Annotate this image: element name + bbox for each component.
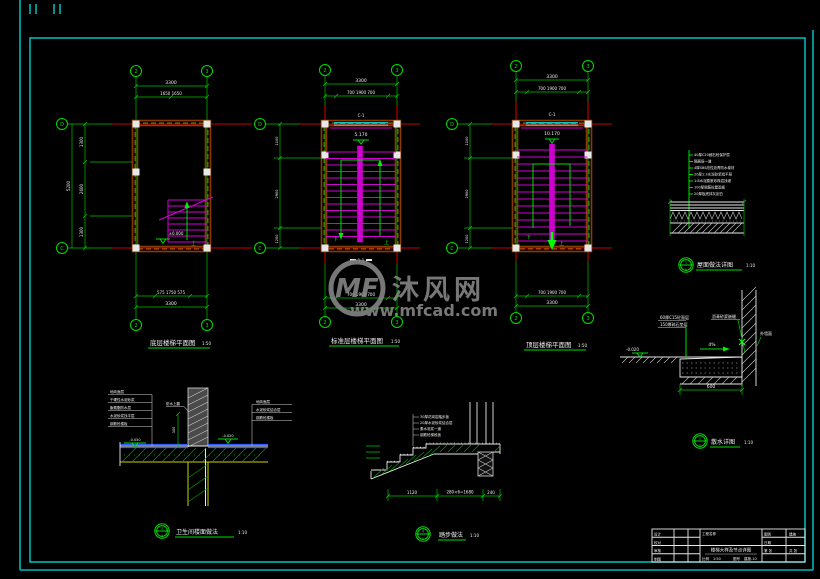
callout: 钢筋砼楼板 [110, 421, 128, 426]
grid-bubble-label: 2 [323, 68, 326, 74]
detail-number: 1 [685, 261, 687, 265]
roof-section [668, 199, 746, 236]
dim-label: 1120 [407, 490, 418, 495]
dim-label: 1100 [465, 137, 469, 146]
page-label: 第 张 [764, 548, 773, 553]
slope-label: 4% [708, 342, 716, 348]
dim-label: 1300 [79, 136, 84, 147]
grid-bubble-label: 3 [205, 323, 208, 329]
detail-title: 散水详图 [711, 438, 735, 446]
window-label: C-1 [549, 112, 556, 117]
dim-label: 2900 [275, 190, 279, 199]
scale-label: 比例 [702, 556, 710, 561]
dim-label: 1200 [275, 235, 279, 244]
plan-ground: 3300 1650 1650 1300 2600 1300 5200 上 ±0.… [57, 66, 253, 349]
plan-title: 底层楼梯平面图 [150, 338, 196, 347]
arrow-head [185, 201, 190, 208]
dim-label: 600 [707, 384, 716, 390]
dim-label: 2600 [79, 183, 84, 194]
detail-bubble: 4 A [416, 527, 430, 541]
callout: 聚氨酯防水层 [110, 405, 131, 410]
elevation-value: -0.050 [129, 438, 140, 442]
grid-bubble-label: 2 [514, 316, 517, 322]
callout: 水泥砂浆结合层 [256, 407, 281, 412]
grid-bubble-label: 3 [586, 316, 589, 322]
detail-apron: 4% -0.020 60厚C15砼面层 150厚碎石垫层 沥青砂浆嵌缝 外墙面 … [620, 287, 772, 448]
detail-number: 4 [422, 530, 425, 534]
layer-callout: 4厚SBS改性沥青防水卷材 [694, 165, 735, 170]
layer-callout: 20厚1:3水泥砂浆找平层 [694, 172, 733, 177]
stair-down-label: 下 [526, 235, 531, 241]
dim-label: 700 1900 700 [538, 290, 566, 295]
grid-bubble-label: 3 [395, 68, 398, 74]
callout: 20厚水泥砂浆结合层 [420, 420, 453, 425]
grid-bubble-label: 2 [134, 323, 137, 329]
elevation-value: -0.020 [222, 434, 233, 438]
dim-label: 700 1900 700 [347, 90, 375, 95]
grid-bubble-label: D [450, 122, 454, 128]
callout: 防水上翻 [166, 401, 180, 406]
layer-callout: 100厚钢筋砼屋面板 [694, 185, 726, 190]
grid-bubble-label: 2 [323, 320, 326, 326]
elevation-marker [218, 439, 238, 443]
plan-scale: 1:50 [391, 339, 400, 344]
titleblock-row-label: 制图 [654, 556, 662, 561]
callout: 地砖面层 [110, 389, 124, 394]
cad-drawing: 3300 1650 1650 1300 2600 1300 5200 上 ±0.… [0, 0, 820, 579]
grid-bubbles: 2 3 2 3 D C [57, 66, 213, 331]
watermark-logo: MF [335, 274, 379, 304]
elevation-marker [545, 139, 559, 143]
detail-number: 2 [699, 437, 701, 441]
stair-up-label: 上 [559, 240, 564, 247]
detail-scale: 1:10 [744, 440, 753, 445]
callout: 钢筋砼梯段板 [420, 432, 441, 437]
date-label: 日期 [764, 540, 772, 545]
elevation-marker [353, 140, 369, 144]
dim-label: 3300 [546, 300, 558, 306]
plan-title: 顶层楼梯平面图 [526, 340, 572, 349]
dim-label: 2900 [465, 190, 469, 199]
window-label: C-1 [358, 113, 365, 118]
callout: 素水泥浆一道 [420, 426, 441, 431]
detail-title: 踏步做法 [439, 531, 463, 539]
number-value: 建施-10 [744, 556, 757, 561]
number-label: 图号 [733, 556, 741, 561]
pages-label: 共 张 [789, 548, 798, 553]
arrow-head [723, 347, 730, 352]
watermark: MF 沐风网 www.mfcad.com [331, 262, 498, 320]
detail-roof: 40厚C20细石砼保护层 隔离层一道 4厚SBS改性沥青防水卷材 20厚1:3水… [668, 150, 755, 272]
floor-slab [120, 442, 268, 506]
stair-flights [517, 144, 588, 244]
detail-scale: 1:10 [238, 530, 247, 535]
dim-label: 3300 [355, 78, 367, 84]
titleblock-row-label: 设计 [654, 532, 662, 537]
dim-label: 700 1900 700 [538, 86, 566, 91]
detail-scale: 1:10 [746, 263, 755, 268]
title-block: 设计 校对 审核 制图 工程名称 楼梯大样及节点详图 比例 1:50 图号 建施… [652, 529, 805, 562]
grid-bubble-label: D [60, 122, 64, 128]
titleblock-row-label: 审核 [654, 548, 662, 553]
grid-bubble-label: C [450, 246, 454, 252]
callout: 钢筋砼楼板 [256, 415, 274, 420]
elevation-value: -0.020 [626, 347, 639, 352]
grid-bubble-label: 3 [395, 320, 398, 326]
callout: 30厚花岗岩踏步板 [420, 414, 449, 419]
dim-label: 280×6=1680 [446, 490, 474, 495]
detail-title: 卫生间楼面做法 [176, 528, 218, 536]
dim-label: 3300 [165, 80, 177, 86]
callout: 60厚C15砼面层 [660, 314, 689, 320]
detail-number: 3 [161, 527, 163, 531]
layer-callout: 40厚C20细石砼保护层 [694, 152, 730, 157]
dim-label: 5200 [66, 180, 71, 191]
dim-label: 1650 1650 [160, 91, 182, 96]
grid-bubble-label: 3 [205, 69, 208, 75]
grid-bubble-label: 2 [134, 69, 137, 75]
plan-title: 标准层楼梯平面图 [331, 336, 383, 345]
drawing-title: 楼梯大样及节点详图 [711, 547, 752, 554]
elevation-value: 10.170 [544, 131, 560, 137]
dim-label: 3300 [546, 74, 558, 80]
dim-label: 1100 [275, 137, 279, 146]
detail-bubble: 1 A [679, 258, 693, 272]
axis-bubbles-mid: D C D C [255, 119, 458, 254]
detail-title: 屋面做法详图 [697, 261, 733, 269]
detail-bubble: 3 A [155, 524, 169, 538]
dim-label: 575 1750 575 [157, 290, 185, 295]
detail-step: 30厚花岗岩踏步板 20厚水泥砂浆结合层 素水泥浆一道 钢筋砼梯段板 1120 … [366, 402, 502, 541]
layer-callout: 1:8水泥膨胀珍珠岩找坡 [694, 178, 732, 183]
grid-bubble-label: C [258, 246, 262, 252]
type-value: 建施 [789, 532, 797, 537]
watermark-url: www.mfcad.com [350, 301, 498, 320]
apron-slab [680, 357, 742, 384]
cad-drawing-canvas: 3300 1650 1650 1300 2600 1300 5200 上 ±0.… [0, 0, 820, 579]
callout: 地砖面层 [256, 399, 270, 404]
plan-scale: 1:50 [202, 341, 211, 346]
dim-label: 1200 [465, 235, 469, 244]
grid-bubble-label: 3 [586, 64, 589, 70]
elevation-value: ±0.000 [169, 231, 184, 236]
detail-scale: 1:10 [470, 533, 479, 538]
titleblock-row-label: 校对 [654, 540, 662, 545]
grid-bubble-label: D [258, 122, 262, 128]
callout: 150厚碎石垫层 [660, 321, 688, 327]
stair-down-label: 下 [333, 237, 338, 243]
dim-label: 3300 [165, 301, 177, 307]
stair-up-label: 上 [384, 239, 389, 246]
elevation-marker [632, 353, 648, 357]
grid-bubble-label: C [60, 246, 64, 252]
callout: 沥青砂浆嵌缝 [712, 313, 736, 319]
callout: 外墙面 [760, 330, 772, 336]
fold-mark [30, 4, 60, 14]
elevation-value: 5.170 [355, 132, 368, 138]
type-label: 图别 [764, 532, 772, 537]
dim-label: 300 [172, 427, 176, 434]
scale-value: 1:50 [713, 557, 721, 561]
project-label: 工程名称 [702, 531, 716, 536]
stair-up-label: 上 [191, 240, 196, 247]
detail-bathroom-floor: 地砖面层 干硬性水泥砂浆 聚氨酯防水层 水泥砂浆找平层 钢筋砼楼板 防水上翻 3… [108, 388, 292, 538]
callout: 干硬性水泥砂浆 [110, 397, 135, 402]
wall-above [470, 402, 493, 444]
dim-label: 240 [487, 490, 495, 495]
layer-callout: 20厚板底抹灰刮白 [694, 191, 723, 196]
dim-label: 1300 [79, 226, 84, 237]
layer-callout: 隔离层一道 [694, 159, 712, 164]
callout: 水泥砂浆找平层 [110, 413, 135, 418]
plan-scale: 1:50 [578, 343, 587, 348]
detail-bubble: 2 A [693, 434, 707, 448]
grid-bubble-label: 2 [514, 64, 517, 70]
